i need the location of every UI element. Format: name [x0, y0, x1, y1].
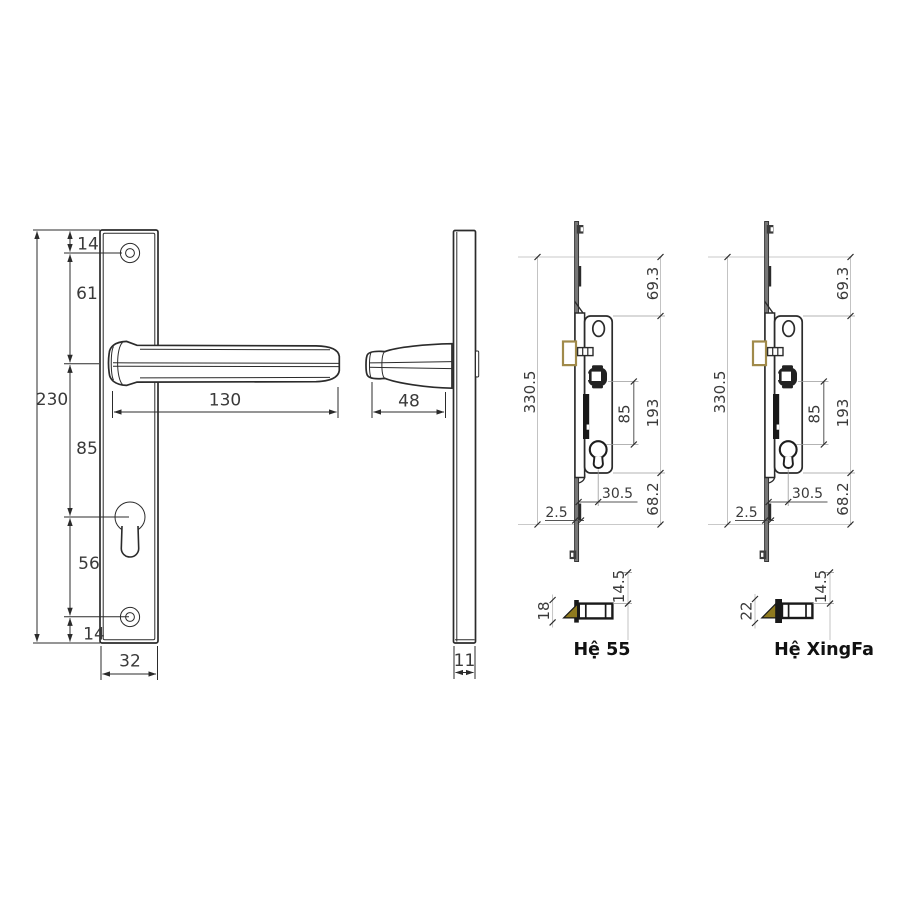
lock-he55-bolt-section: 18 14.5	[535, 569, 632, 640]
rod-cam-upper	[579, 266, 582, 287]
lever-bottom-facet	[140, 377, 330, 378]
rod-top-pin-notch	[771, 227, 773, 231]
dim-label-backset: 30.5	[792, 486, 823, 502]
deadbolt-slot	[773, 394, 779, 439]
dim-label-spindle-to-cylinder: 85	[805, 404, 823, 423]
dim-label-body-length: 193	[644, 399, 662, 428]
dim-label-top-section: 69.3	[644, 267, 662, 300]
dim-label-total-length: 330.5	[711, 371, 729, 414]
section-latch-wedge	[564, 604, 578, 618]
euro-cylinder-hole-stem	[121, 526, 138, 557]
dim-label-plate-thickness: 11	[454, 651, 476, 671]
cylinder-keyhole-stem	[784, 457, 793, 468]
dim-label-top-to-screw: 14	[77, 234, 99, 254]
dim-label-total-length: 330.5	[521, 371, 539, 414]
dim-label-handle-to-cylinder: 85	[76, 439, 98, 459]
lock-xingfa-bolt-section: 22 14.5	[737, 569, 834, 640]
lock-xingfa-view: 330.5 69.3 193 68.2 85 30.5	[708, 222, 874, 661]
technical-drawing-page: 230 14 61 85 56 14 130 32	[0, 0, 900, 900]
latch-bolt	[563, 342, 576, 366]
front-plate-inner-edge	[103, 233, 155, 640]
lever-mid-line-1	[113, 363, 339, 364]
front-plate-view: 230 14 61 85 56 14 130 32	[33, 230, 339, 680]
dim-label-backset: 30.5	[602, 486, 633, 502]
dim-label-cylinder-to-screw: 56	[78, 554, 100, 574]
door-handle-lock-drawing: 230 14 61 85 56 14 130 32	[0, 0, 900, 900]
dim-label-handle-depth: 48	[398, 391, 420, 411]
dim-label-bottom-section: 68.2	[644, 482, 662, 515]
spindle-square-hole	[592, 372, 601, 381]
dim-label-bolt-height: 22	[737, 601, 755, 620]
lock-he55-view: 330.5 69.3 193 68.2 85 30.5	[518, 222, 665, 661]
top-screw-hole	[120, 243, 139, 262]
latch-bolt	[753, 342, 766, 366]
dim-label-screw-to-bottom: 14	[83, 624, 105, 644]
lever-handle-side	[366, 344, 452, 389]
section-bolt-body	[782, 604, 812, 618]
lock-he55-label: Hệ 55	[574, 640, 631, 660]
dim-label-plate-width: 32	[119, 651, 141, 671]
cylinder-keyhole-circle	[590, 441, 607, 458]
dim-label-total-height: 230	[36, 390, 68, 410]
deadbolt-slot-notch	[587, 425, 590, 430]
deadbolt-slot-notch	[777, 425, 780, 430]
spindle-square-hole	[782, 372, 791, 381]
rod-top-pin-notch	[581, 227, 583, 231]
lever-top-facet	[140, 349, 330, 350]
dim-label-spindle-to-cylinder: 85	[615, 404, 633, 423]
rod-bottom-pin-notch	[761, 553, 763, 557]
rod-cam-lower	[769, 504, 772, 521]
front-plate-dimensions: 230 14 61 85 56 14 130 32	[33, 230, 338, 680]
section-latch-wedge	[762, 604, 776, 618]
dim-label-body-length: 193	[834, 399, 852, 428]
rod-cam-lower	[579, 504, 582, 521]
dim-label-faceplate-thickness: 2.5	[735, 505, 757, 521]
dim-label-bolt-depth: 14.5	[812, 570, 830, 603]
spindle-side-gap	[587, 374, 589, 381]
mounting-slot	[783, 321, 795, 337]
lever-handle-front	[109, 341, 340, 385]
dim-label-bolt-depth: 14.5	[610, 570, 628, 603]
mounting-slot	[593, 321, 605, 337]
lock-xingfa-label: Hệ XingFa	[774, 640, 874, 660]
dim-label-bolt-height: 18	[535, 601, 553, 620]
dim-label-handle-length: 130	[209, 390, 241, 410]
spindle-boss-side	[476, 351, 479, 377]
dim-label-faceplate-thickness: 2.5	[545, 505, 567, 521]
rod-cam-upper	[769, 266, 772, 287]
section-bolt-body	[579, 604, 613, 619]
cylinder-keyhole-circle	[780, 441, 797, 458]
deadbolt-slot	[583, 394, 589, 439]
cylinder-keyhole-stem	[594, 457, 603, 468]
rod-bottom-pin-notch	[571, 553, 573, 557]
dim-label-bottom-section: 68.2	[834, 482, 852, 515]
latch-guide-comb	[578, 348, 593, 356]
dim-label-screw-to-handle: 61	[76, 284, 98, 304]
spindle-side-gap	[777, 374, 779, 381]
dim-label-top-section: 69.3	[834, 267, 852, 300]
latch-guide-comb	[768, 348, 783, 356]
side-view: 48 11	[366, 231, 479, 680]
